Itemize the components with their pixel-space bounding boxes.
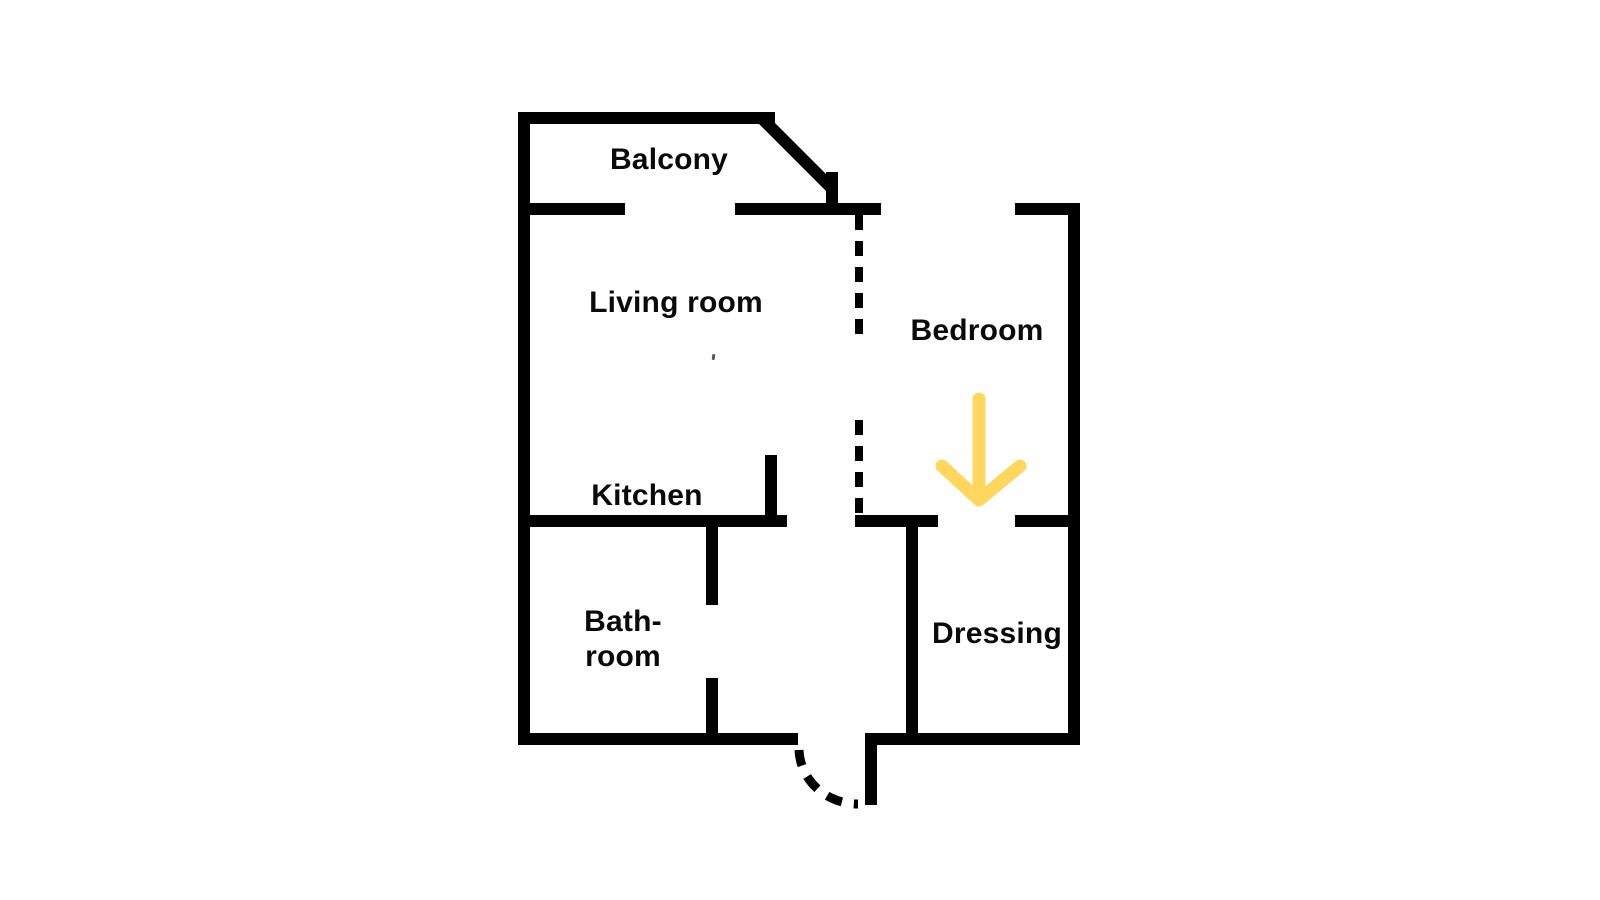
room-label-bathroom-line2: room	[584, 639, 662, 674]
room-label-bedroom: Bedroom	[910, 314, 1043, 348]
wall-kitchen-bottom	[518, 515, 787, 527]
wall-outer-right	[1068, 203, 1080, 745]
room-label-dressing: Dressing	[932, 617, 1062, 651]
wall-bathroom-divider-lower	[706, 678, 718, 745]
wall-kitchen-stub	[765, 455, 777, 527]
plan-annotations-layer	[0, 0, 1600, 900]
wall-entry-door-jamb	[865, 733, 877, 805]
wall-bottom-left-segment	[518, 733, 798, 745]
wall-dressing-left	[906, 515, 918, 745]
entry-door-swing-arc	[799, 750, 858, 804]
stray-mark	[712, 354, 716, 360]
room-label-kitchen: Kitchen	[591, 479, 702, 513]
wall-living-top-right-segment	[735, 203, 881, 215]
floor-plan: Balcony Living room Kitchen Bath- room B…	[0, 0, 1600, 900]
room-label-bathroom: Bath- room	[584, 604, 662, 674]
wall-balcony-top	[518, 112, 775, 124]
room-label-balcony: Balcony	[610, 143, 728, 177]
room-label-living-room: Living room	[589, 286, 763, 320]
wall-balcony-diagonal	[756, 112, 835, 191]
room-label-bathroom-line1: Bath-	[584, 604, 662, 639]
wall-bathroom-divider-upper	[706, 515, 718, 605]
wall-living-top-left-segment	[518, 203, 625, 215]
wall-dressing-top-left-segment	[855, 515, 938, 527]
arrow-down-icon	[942, 399, 1020, 500]
wall-dressing-top-right-segment	[1015, 515, 1080, 527]
arrow-head	[942, 466, 1020, 500]
wall-bottom-right-segment	[865, 733, 1080, 745]
